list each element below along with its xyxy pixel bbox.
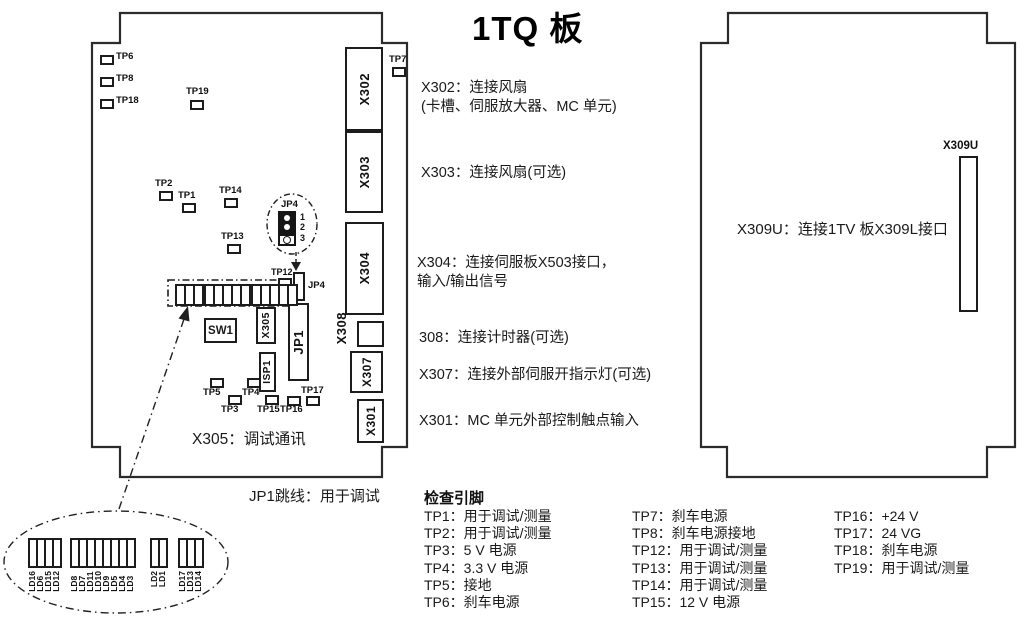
connector-x307: X307 — [350, 351, 383, 393]
component-x305: X305 — [256, 307, 276, 344]
connector-x307-label: X307 — [360, 357, 374, 387]
check-pin-item: TP18：刹车电源 — [834, 542, 969, 559]
connector-x302-label: X302 — [357, 73, 372, 105]
tp14-label: TP14 — [219, 186, 242, 196]
annotation-x301: X301：MC 单元外部控制触点输入 — [419, 412, 639, 430]
led-detail-cells — [70, 538, 136, 568]
check-pin-item: TP15：12 V 电源 — [632, 594, 767, 611]
tp1-label: TP1 — [178, 191, 195, 201]
led-detail-labels: LD17LD13LD14 — [178, 571, 204, 592]
connector-x308-label: X308 — [334, 312, 349, 344]
annotation-x303: X303：连接风扇(可选) — [421, 164, 566, 182]
component-isp1: ISP1 — [259, 352, 276, 392]
tp18-pad — [100, 99, 114, 109]
check-pin-item: TP2：用于调试/测量 — [424, 525, 552, 542]
page: 1TQ 板 TP6 TP8 TP18 TP19 TP2 TP1 TP14 TP1… — [0, 0, 1025, 626]
tp6-pad — [100, 55, 114, 65]
tp5-label: TP5 — [203, 388, 220, 398]
check-pins-column-3: TP16：+24 V TP17：24 VG TP18：刹车电源 TP19：用于调… — [834, 508, 969, 577]
annotation-x304-line2: 输入/输出信号 — [417, 273, 508, 291]
connector-x303-label: X303 — [357, 156, 372, 188]
connector-x308 — [357, 321, 384, 347]
check-pin-item: TP13：用于调试/测量 — [632, 560, 767, 577]
annotation-x307: X307：连接外部伺服开指示灯(可选) — [419, 366, 651, 384]
connector-x301: X301 — [357, 399, 384, 443]
led-detail-cells — [150, 538, 168, 568]
tp17-label: TP17 — [301, 386, 324, 396]
led-label: LD14 — [194, 571, 202, 592]
tp13-pad — [227, 244, 241, 254]
connector-x301-label: X301 — [364, 406, 378, 436]
led-detail-labels: LD8LD7LD11LD10LD9LD5LD4LD3 — [70, 571, 136, 592]
annotation-x304-line1: X304：连接伺服板X503接口， — [417, 254, 615, 272]
tp8-pad — [100, 77, 114, 87]
tp1-pad — [182, 203, 196, 213]
check-pins-header: 检查引脚 — [424, 487, 484, 508]
led-cell — [52, 538, 62, 568]
component-x305-label: X305 — [260, 312, 272, 339]
jp4-pin2-dot — [284, 224, 290, 230]
led-detail-group-1: LD16LD6LD15LD12 — [28, 538, 62, 592]
tp6-label: TP6 — [116, 52, 133, 62]
annotation-x302-line2: (卡槽、伺服放大器、MC 单元) — [421, 98, 617, 116]
check-pin-item: TP5：接地 — [424, 577, 552, 594]
component-isp1-label: ISP1 — [262, 360, 273, 384]
check-pin-item: TP19：用于调试/测量 — [834, 560, 969, 577]
led-cell — [126, 538, 136, 568]
led-detail-cells — [178, 538, 204, 568]
led-cell — [194, 538, 204, 568]
check-pin-item: TP4：3.3 V 电源 — [424, 560, 552, 577]
tp8-label: TP8 — [116, 74, 133, 84]
tp2-pad — [159, 191, 173, 201]
tp13-label: TP13 — [221, 232, 244, 242]
check-pin-item: TP17：24 VG — [834, 525, 969, 542]
x309u-note: X309U：连接1TV 板X309L接口 — [737, 218, 948, 239]
component-jp1-label: JP1 — [291, 330, 306, 355]
jp4-detail-pins-1-2 — [278, 211, 296, 234]
connector-x302: X302 — [345, 47, 383, 131]
connector-x303: X303 — [345, 131, 383, 213]
jp4-pin2-number: 2 — [300, 223, 305, 232]
jp4-pin1-number: 1 — [300, 213, 305, 222]
tp19-pad — [190, 100, 204, 110]
led-detail-labels: LD2LD1 — [150, 571, 168, 587]
jp4-pin3-number: 3 — [300, 234, 305, 243]
led-detail-group-3: LD2LD1 — [150, 538, 168, 587]
component-sw1-label: SW1 — [208, 325, 233, 337]
component-jp4-label: JP4 — [308, 280, 325, 291]
led-label: LD1 — [158, 571, 166, 587]
check-pins-column-1: TP1：用于调试/测量 TP2：用于调试/测量 TP3：5 V 电源 TP4：3… — [424, 508, 552, 611]
tp15-label: TP15 — [257, 405, 280, 415]
check-pin-item: TP1：用于调试/测量 — [424, 508, 552, 525]
tp17-pad — [306, 396, 320, 406]
tp3-label: TP3 — [221, 405, 238, 415]
check-pin-item: TP6：刹车电源 — [424, 594, 552, 611]
led-detail-group-2: LD8LD7LD11LD10LD9LD5LD4LD3 — [70, 538, 136, 592]
tp12-label: TP12 — [271, 267, 293, 277]
connector-x309u-label: X309U — [943, 140, 978, 152]
annotation-x308: 308：连接计时器(可选) — [419, 329, 569, 347]
check-pin-item: TP16：+24 V — [834, 508, 969, 525]
connector-x304: X304 — [345, 222, 384, 315]
jp4-detail-label: JP4 — [281, 199, 298, 210]
component-sw1: SW1 — [204, 318, 237, 343]
led-strip-group-3 — [251, 284, 271, 306]
check-pin-item: TP8：刹车电源接地 — [632, 525, 767, 542]
led-cell — [158, 538, 168, 568]
led-detail-group-4: LD17LD13LD14 — [178, 538, 204, 592]
check-pin-item: TP7：刹车电源 — [632, 508, 767, 525]
led-strip-group-4 — [269, 284, 298, 306]
tp14-pad — [224, 198, 238, 208]
check-pins-column-2: TP7：刹车电源 TP8：刹车电源接地 TP12：用于调试/测量 TP13：用于… — [632, 508, 767, 611]
check-pin-item: TP3：5 V 电源 — [424, 542, 552, 559]
jp4-pin1-dot — [284, 215, 290, 221]
tp18-label: TP18 — [116, 96, 139, 106]
connector-x304-label: X304 — [357, 252, 372, 284]
tp16-label: TP16 — [280, 405, 303, 415]
tp2-label: TP2 — [155, 179, 172, 189]
led-detail-cells — [28, 538, 62, 568]
connector-x309u — [959, 156, 978, 312]
jp4-detail-pin-3 — [278, 234, 296, 246]
jp4-pin3-ring — [283, 236, 291, 244]
tp4-label: TP4 — [242, 388, 259, 398]
component-jp1: JP1 — [288, 303, 309, 381]
annotation-jp1: JP1跳线：用于调试 — [249, 488, 380, 506]
page-title: 1TQ 板 — [472, 2, 583, 50]
tp7-pad — [392, 67, 406, 77]
x305-note: X305：调试通讯 — [192, 427, 306, 449]
led-detail-labels: LD16LD6LD15LD12 — [28, 571, 62, 592]
check-pin-item: TP14：用于调试/测量 — [632, 577, 767, 594]
led-label: LD3 — [126, 571, 134, 592]
tp7-label: TP7 — [389, 55, 406, 65]
tp19-label: TP19 — [186, 87, 209, 97]
led-cell-mini — [287, 284, 298, 306]
led-label: LD12 — [52, 571, 60, 592]
annotation-x302-line1: X302：连接风扇 — [421, 79, 527, 97]
check-pin-item: TP12：用于调试/测量 — [632, 542, 767, 559]
